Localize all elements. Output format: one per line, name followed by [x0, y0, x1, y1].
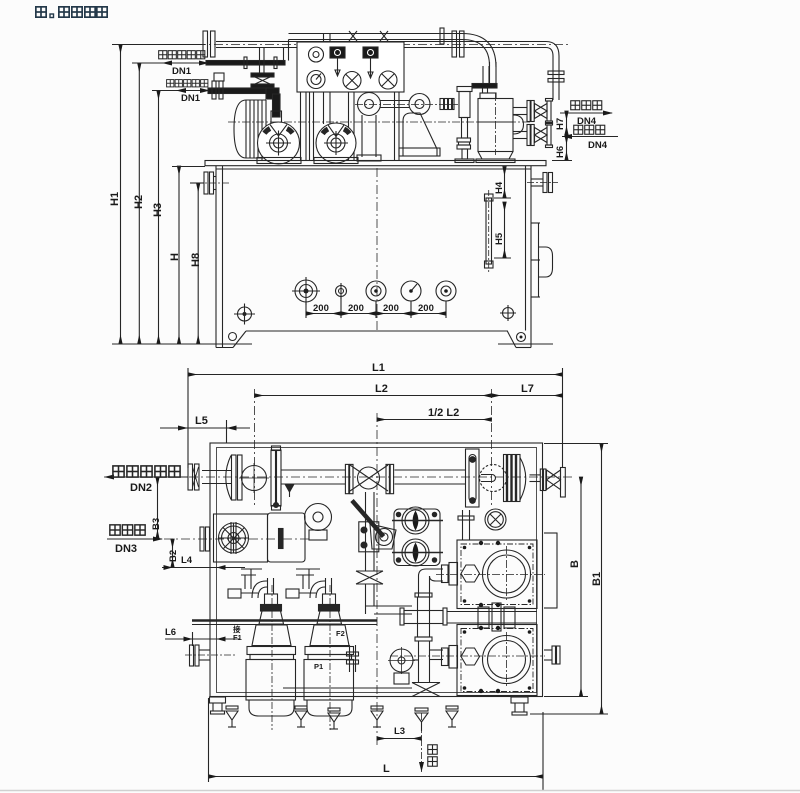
svg-text:H6: H6 [555, 146, 566, 158]
svg-text:B3: B3 [151, 518, 162, 530]
svg-text:H: H [169, 253, 181, 261]
svg-text:200: 200 [418, 303, 434, 314]
svg-text:200: 200 [348, 303, 364, 314]
svg-text:B1: B1 [591, 572, 603, 586]
svg-text:B: B [569, 560, 581, 568]
svg-text:DN1: DN1 [181, 93, 201, 104]
svg-text:200: 200 [313, 303, 329, 314]
svg-text:H1: H1 [109, 192, 121, 206]
svg-text:L: L [383, 763, 390, 775]
svg-text:L6: L6 [165, 627, 176, 638]
svg-text:DN2: DN2 [130, 482, 152, 494]
svg-text:F2: F2 [336, 629, 345, 638]
svg-text:H2: H2 [133, 195, 145, 209]
svg-text:F1: F1 [233, 633, 242, 642]
svg-text:H8: H8 [190, 253, 202, 267]
svg-text:L1: L1 [372, 362, 385, 374]
svg-text:DN4: DN4 [588, 140, 608, 151]
svg-text:H3: H3 [152, 203, 164, 217]
svg-text:H7: H7 [555, 118, 566, 130]
svg-text:H5: H5 [494, 232, 505, 245]
svg-text:L4: L4 [181, 555, 193, 566]
svg-text:DN1: DN1 [172, 66, 192, 77]
svg-text:DN4: DN4 [577, 116, 597, 127]
svg-text:P1: P1 [314, 662, 323, 671]
svg-text:H4: H4 [494, 181, 505, 194]
svg-text:L5: L5 [195, 415, 208, 427]
svg-text:200: 200 [383, 303, 399, 314]
svg-text:L7: L7 [521, 383, 534, 395]
svg-text:1/2 L2: 1/2 L2 [428, 407, 459, 419]
svg-text:B2: B2 [168, 550, 179, 562]
svg-text:L3: L3 [394, 726, 405, 737]
svg-text:DN3: DN3 [115, 543, 137, 555]
svg-text:L2: L2 [375, 383, 388, 395]
